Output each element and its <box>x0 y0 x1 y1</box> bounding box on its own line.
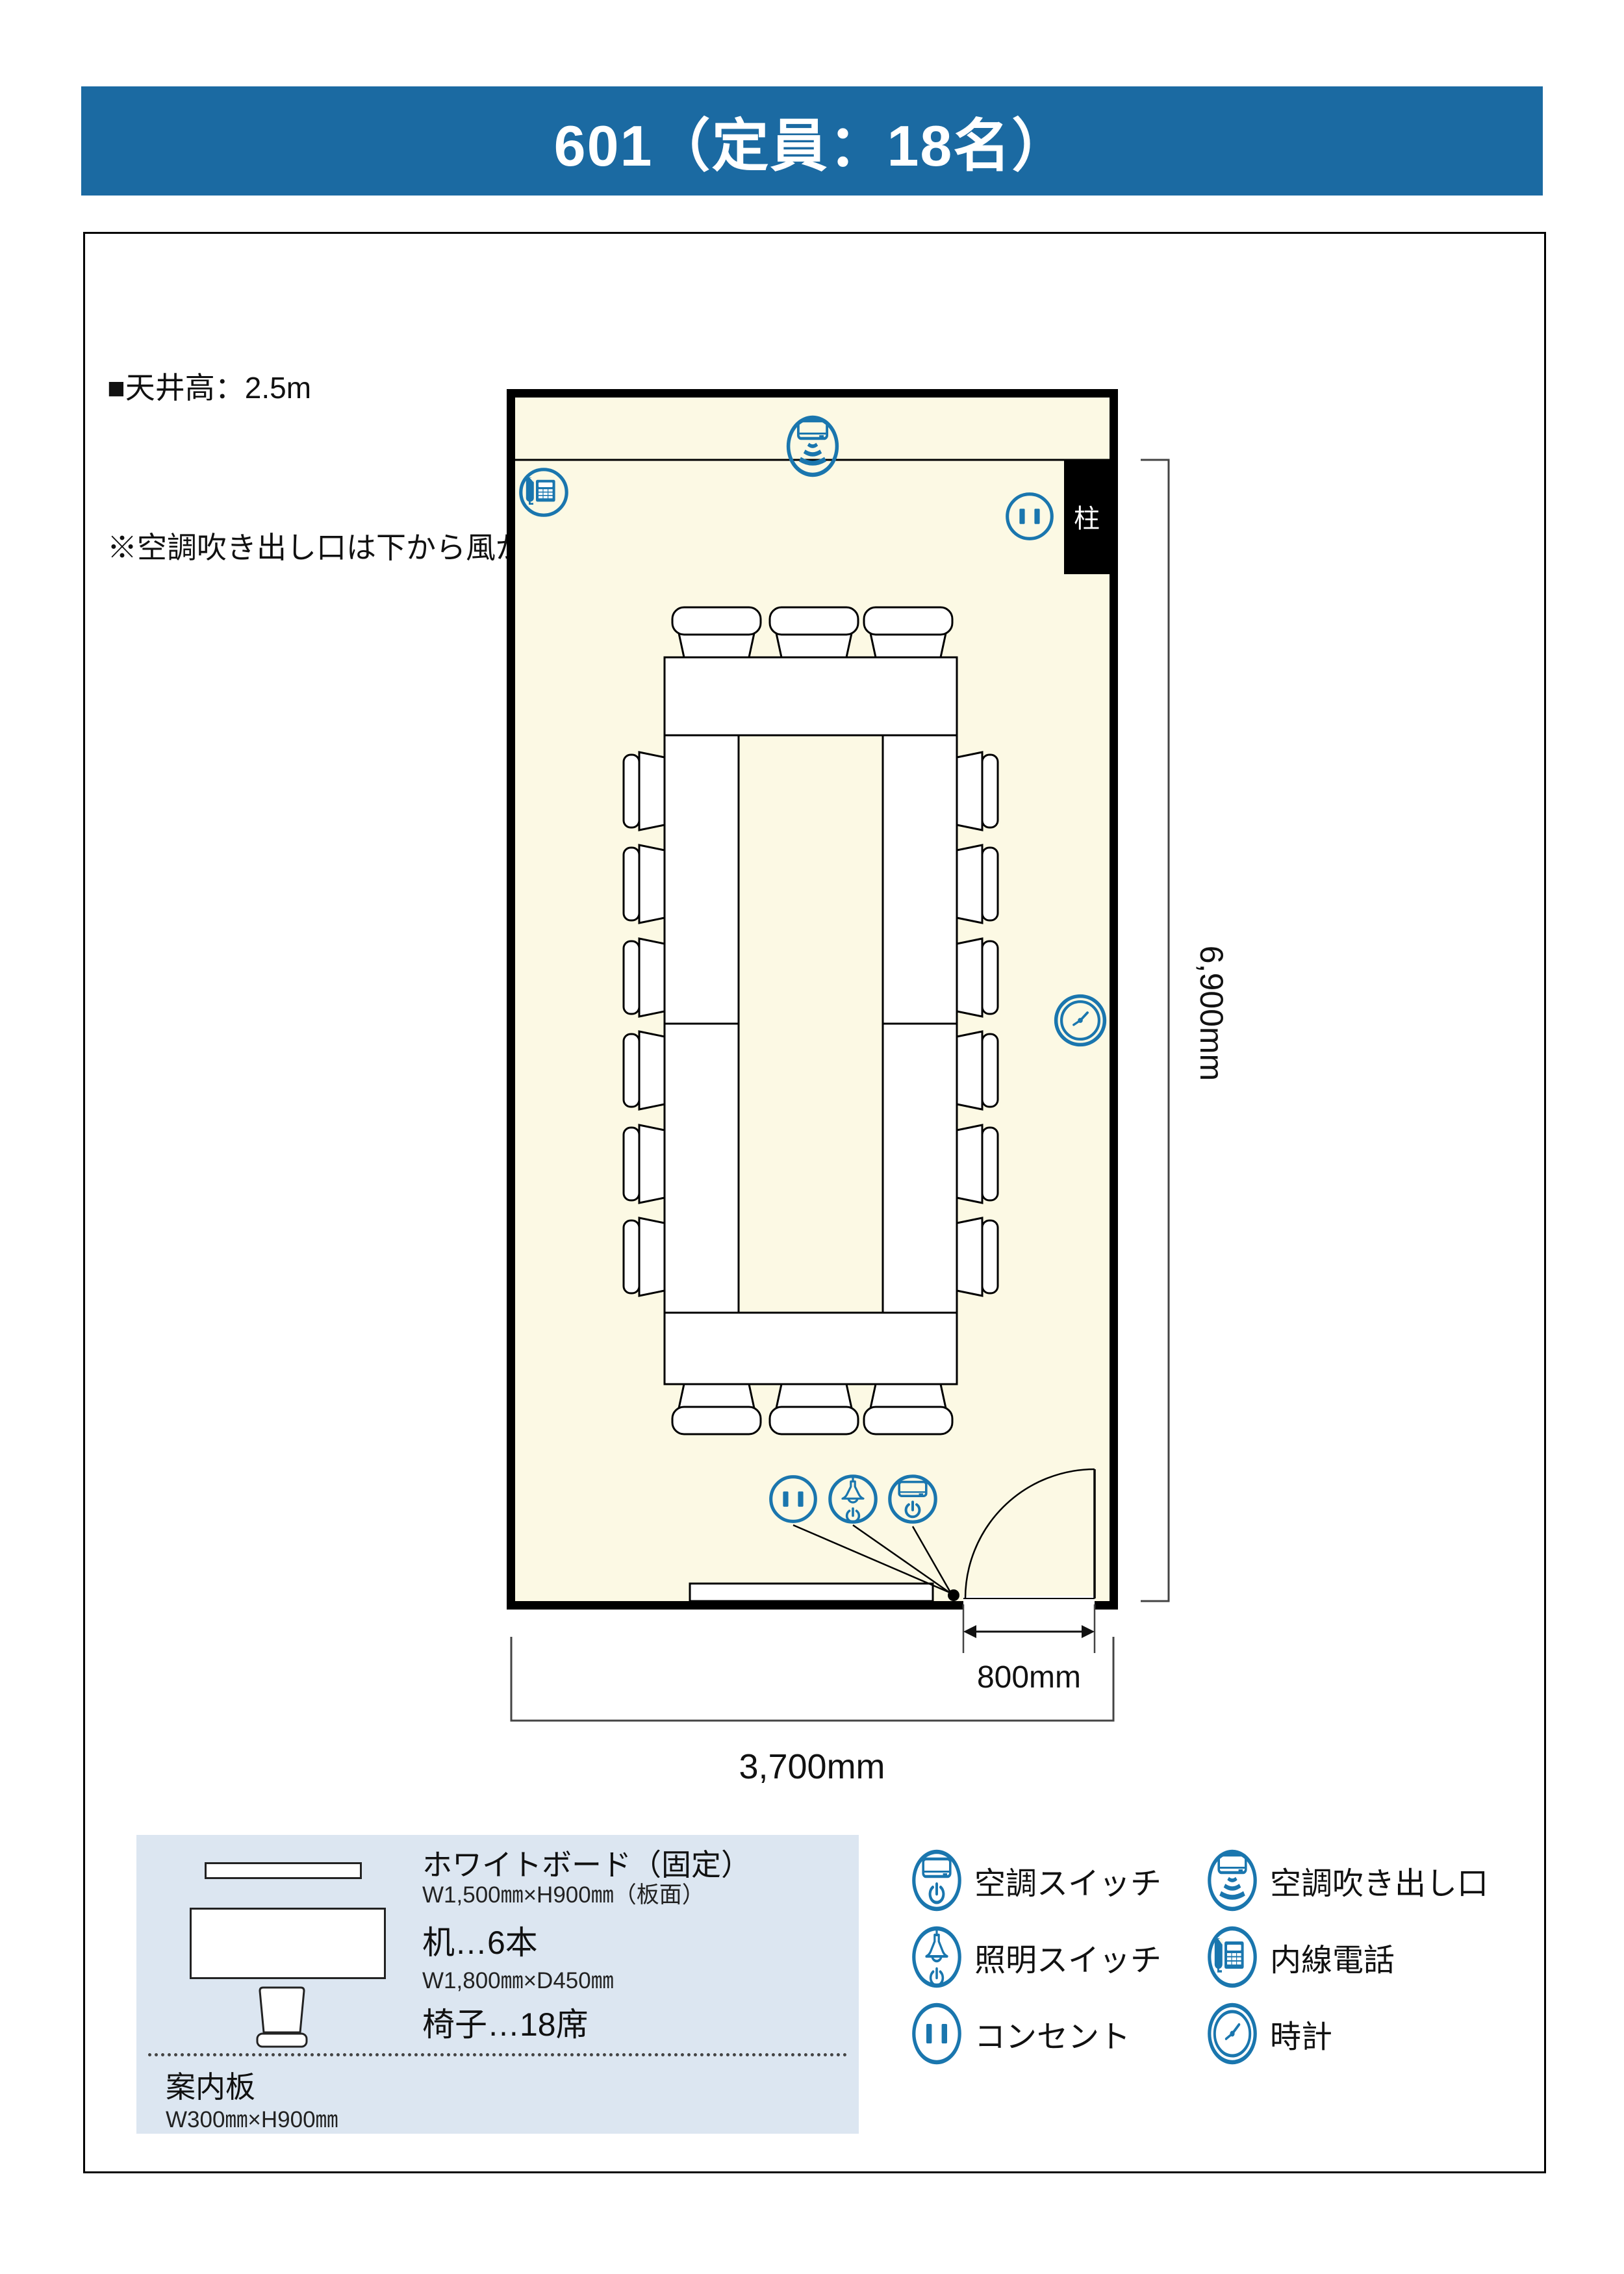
legend-item-ac-switch: 空調スイッチ <box>911 1842 1206 1919</box>
legend-label: 内線電話 <box>1270 1934 1395 1980</box>
legend-item-outlet: コンセント <box>911 1995 1206 2072</box>
legend-label: コンセント <box>974 2011 1130 2056</box>
whiteboard-fixed <box>690 1584 933 1601</box>
legend-label: 照明スイッチ <box>974 1934 1161 1980</box>
furniture-legend: ホワイトボード（固定） W1,500㎜×H900㎜（板面） 机…6本 W1,80… <box>136 1835 859 2134</box>
desk <box>883 735 957 1024</box>
chair <box>770 1384 858 1434</box>
chair <box>957 1031 998 1109</box>
whiteboard-shape <box>205 1862 362 1879</box>
ac-vent-icon <box>1206 1848 1258 1913</box>
chair <box>770 607 858 657</box>
dim-bracket-length <box>1141 460 1169 1601</box>
chair <box>957 1218 998 1296</box>
clock-icon <box>1206 2001 1258 2066</box>
desk-shape <box>190 1908 386 1979</box>
chair <box>957 845 998 923</box>
page: 601（定員：18名） ■天井高：2.5m ※空調吹き出し口は下から風がきます <box>0 0 1624 2274</box>
dim-label-length: 6,900mm <box>1193 946 1230 1081</box>
legend-label: 時計 <box>1270 2011 1332 2056</box>
chair <box>672 607 761 657</box>
chair <box>864 607 952 657</box>
dim-label-door: 800mm <box>977 1660 1081 1695</box>
outlet-icon <box>911 2001 963 2066</box>
chair <box>957 752 998 830</box>
chair <box>624 1125 665 1203</box>
whiteboard-size: W1,500㎜×H900㎜（板面） <box>422 1876 705 1910</box>
desk <box>665 1024 739 1313</box>
chair <box>672 1384 761 1434</box>
legend-item-light-switch: 照明スイッチ <box>911 1919 1206 1995</box>
chair <box>864 1384 952 1434</box>
chair <box>624 1218 665 1296</box>
chair <box>624 752 665 830</box>
chair <box>957 939 998 1017</box>
equipment-legend: 空調スイッチ 空調吹き出し口 照明スイッチ 内線電話 コンセント 時計 <box>911 1842 1538 2072</box>
light-switch-icon <box>911 1925 963 1990</box>
ac-switch-icon <box>911 1848 963 1913</box>
legend-item-ac-vent: 空調吹き出し口 <box>1206 1842 1538 1919</box>
legend-divider <box>148 2053 847 2056</box>
desk <box>665 735 739 1024</box>
sign-size: W300㎜×H900㎜ <box>166 2101 338 2134</box>
legend-item-phone: 内線電話 <box>1206 1919 1538 1995</box>
legend-label: 空調スイッチ <box>974 1858 1161 1903</box>
chair <box>624 1031 665 1109</box>
sign-name: 案内板 <box>166 2064 255 2106</box>
legend-label: 空調吹き出し口 <box>1270 1858 1488 1903</box>
desk <box>665 1313 957 1384</box>
chair-name: 椅子…18席 <box>422 1999 589 2045</box>
desk <box>883 1024 957 1313</box>
chair <box>624 939 665 1017</box>
desk-name: 机…6本 <box>422 1917 538 1964</box>
desk-size: W1,800㎜×D450㎜ <box>422 1962 614 1995</box>
desk <box>665 657 957 735</box>
legend-item-clock: 時計 <box>1206 1995 1538 2072</box>
phone-icon <box>1206 1925 1258 1990</box>
chair-shape <box>252 1986 312 2051</box>
chair <box>957 1125 998 1203</box>
dim-label-width: 3,700mm <box>739 1747 885 1786</box>
pillar-label: 柱 <box>1074 505 1100 533</box>
chair <box>624 845 665 923</box>
